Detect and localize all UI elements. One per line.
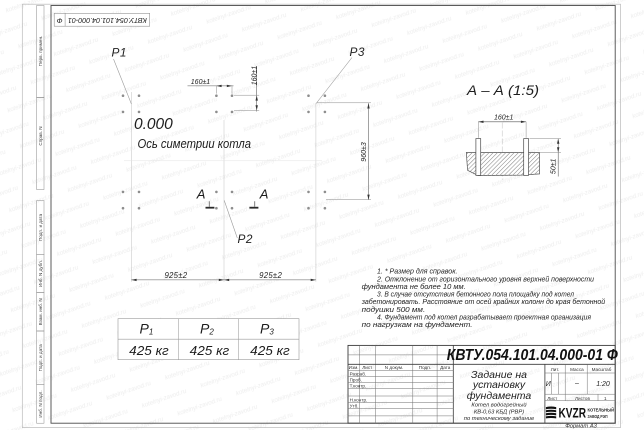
svg-text:Подп.: Подп. [419, 365, 431, 370]
svg-text:925±2: 925±2 [164, 271, 187, 280]
svg-text:Т.контр.: Т.контр. [350, 384, 367, 389]
svg-text:–: – [574, 381, 579, 388]
svg-text:Подп. и дата: Подп. и дата [38, 214, 43, 242]
svg-text:Взам. инб. N: Взам. инб. N [38, 298, 43, 325]
svg-text:Ф: Ф [57, 16, 63, 25]
svg-text:А – А (1:5): А – А (1:5) [466, 83, 539, 98]
svg-text:Справ. N: Справ. N [38, 126, 43, 145]
svg-text:КВТУ.054.101.04.000-01: КВТУ.054.101.04.000-01 [68, 16, 147, 25]
svg-text:фундамента: фундамента [467, 390, 532, 402]
svg-text:1:20: 1:20 [596, 381, 610, 388]
svg-text:Утб.: Утб. [350, 404, 359, 409]
svg-text:1: 1 [604, 396, 607, 401]
svg-text:Лист: Лист [547, 396, 558, 401]
svg-text:КОТЕЛЬНЫЙ: КОТЕЛЬНЫЙ [588, 405, 615, 412]
svg-text:425 кг: 425 кг [129, 343, 169, 358]
svg-text:50±1: 50±1 [550, 158, 557, 174]
svg-text:925±2: 925±2 [259, 271, 282, 280]
svg-text:Перв. примен.: Перв. примен. [38, 36, 43, 67]
svg-text:P2: P2 [238, 232, 253, 246]
svg-text:Листов: Листов [575, 396, 590, 401]
svg-text:160±1: 160±1 [494, 114, 514, 121]
svg-text:Инб. N подл.: Инб. N подл. [38, 390, 43, 417]
svg-text:P3: P3 [350, 45, 365, 59]
svg-text:Формат А3: Формат А3 [565, 424, 597, 430]
svg-text:Инб. N дубл.: Инб. N дубл. [38, 260, 43, 287]
svg-text:160±1: 160±1 [251, 66, 258, 86]
svg-text:Лит.: Лит. [551, 367, 560, 372]
svg-text:Дата: Дата [440, 365, 451, 370]
svg-text:Изм.: Изм. [349, 365, 359, 370]
svg-text:425 кг: 425 кг [190, 343, 230, 358]
svg-text:KVZR: KVZR [559, 405, 587, 420]
svg-text:0.000: 0.000 [134, 116, 173, 133]
svg-text:Проб.: Проб. [350, 378, 362, 383]
svg-text:А: А [259, 187, 269, 202]
svg-text:по техническому задание: по техническому задание [464, 416, 535, 422]
svg-text:Подп. и дата: Подп. и дата [38, 344, 43, 372]
svg-text:N докум.: N докум. [385, 365, 404, 370]
svg-text:Масштаб: Масштаб [592, 367, 612, 372]
svg-text:по нагрузкам на фундамент.: по нагрузкам на фундамент. [362, 320, 473, 329]
svg-text:Котел водогрейный: Котел водогрейный [471, 402, 527, 409]
svg-text:425 кг: 425 кг [250, 343, 290, 358]
svg-text:P1: P1 [112, 46, 127, 60]
svg-text:ЗАВОД РЭП: ЗАВОД РЭП [588, 414, 608, 419]
svg-text:А: А [196, 187, 206, 202]
svg-text:960±3: 960±3 [361, 142, 368, 162]
svg-text:Масса: Масса [570, 367, 584, 372]
svg-text:Н.контр.: Н.контр. [350, 398, 368, 403]
svg-text:Лист: Лист [362, 365, 373, 370]
svg-text:КВ-0,63 КБД (РВР): КВ-0,63 КБД (РВР) [474, 409, 524, 415]
svg-text:Ось симетрии котла: Ось симетрии котла [138, 137, 252, 151]
svg-text:КВТУ.054.101.04.000-01 Ф: КВТУ.054.101.04.000-01 Ф [447, 347, 618, 364]
svg-text:160±1: 160±1 [191, 79, 211, 86]
svg-text:Разраб.: Разраб. [350, 371, 367, 376]
